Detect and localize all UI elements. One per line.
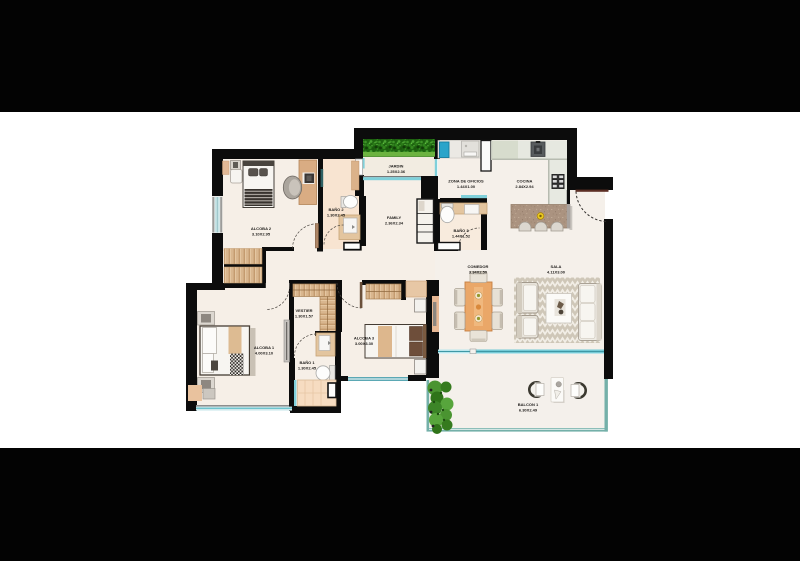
svg-text:ZONA DE OFICIOS: ZONA DE OFICIOS <box>448 179 484 184</box>
svg-text:ALCOBA 2: ALCOBA 2 <box>251 226 272 231</box>
svg-text:BAÑO 2: BAÑO 2 <box>328 207 344 212</box>
svg-text:3.34X2.50: 3.34X2.50 <box>469 269 488 274</box>
svg-text:1.44X1.52: 1.44X1.52 <box>452 233 471 238</box>
svg-text:6.30X2.49: 6.30X2.49 <box>519 407 538 412</box>
svg-text:BAÑO 3: BAÑO 3 <box>453 228 469 233</box>
svg-text:1.25X2.36: 1.25X2.36 <box>387 169 406 174</box>
svg-text:BAÑO 1: BAÑO 1 <box>299 360 315 365</box>
svg-text:COMEDOR: COMEDOR <box>468 264 489 269</box>
svg-text:2.36X2.34: 2.36X2.34 <box>385 220 404 225</box>
svg-text:3.10X2.95: 3.10X2.95 <box>252 231 271 236</box>
svg-text:4.11X3.00: 4.11X3.00 <box>547 269 566 274</box>
svg-text:2.84X2.94: 2.84X2.94 <box>515 184 534 189</box>
svg-text:JARDIN: JARDIN <box>389 164 404 169</box>
svg-text:1.30X1.57: 1.30X1.57 <box>295 313 314 318</box>
svg-text:1.44X1.00: 1.44X1.00 <box>457 184 476 189</box>
svg-text:SALA: SALA <box>551 264 562 269</box>
svg-text:COCINA: COCINA <box>517 179 533 184</box>
svg-text:1.30X2.45: 1.30X2.45 <box>298 365 317 370</box>
svg-text:VESTIER: VESTIER <box>295 308 312 313</box>
svg-text:ALCOBA 3: ALCOBA 3 <box>354 336 375 341</box>
svg-text:ALCOBA 1: ALCOBA 1 <box>254 345 275 350</box>
svg-text:FAMILY: FAMILY <box>387 215 402 220</box>
svg-text:1.30X2.45: 1.30X2.45 <box>327 212 346 217</box>
svg-text:3.00X3.30: 3.00X3.30 <box>355 341 374 346</box>
svg-text:BALCON 1: BALCON 1 <box>518 402 539 407</box>
svg-text:4.00X3.10: 4.00X3.10 <box>255 350 274 355</box>
